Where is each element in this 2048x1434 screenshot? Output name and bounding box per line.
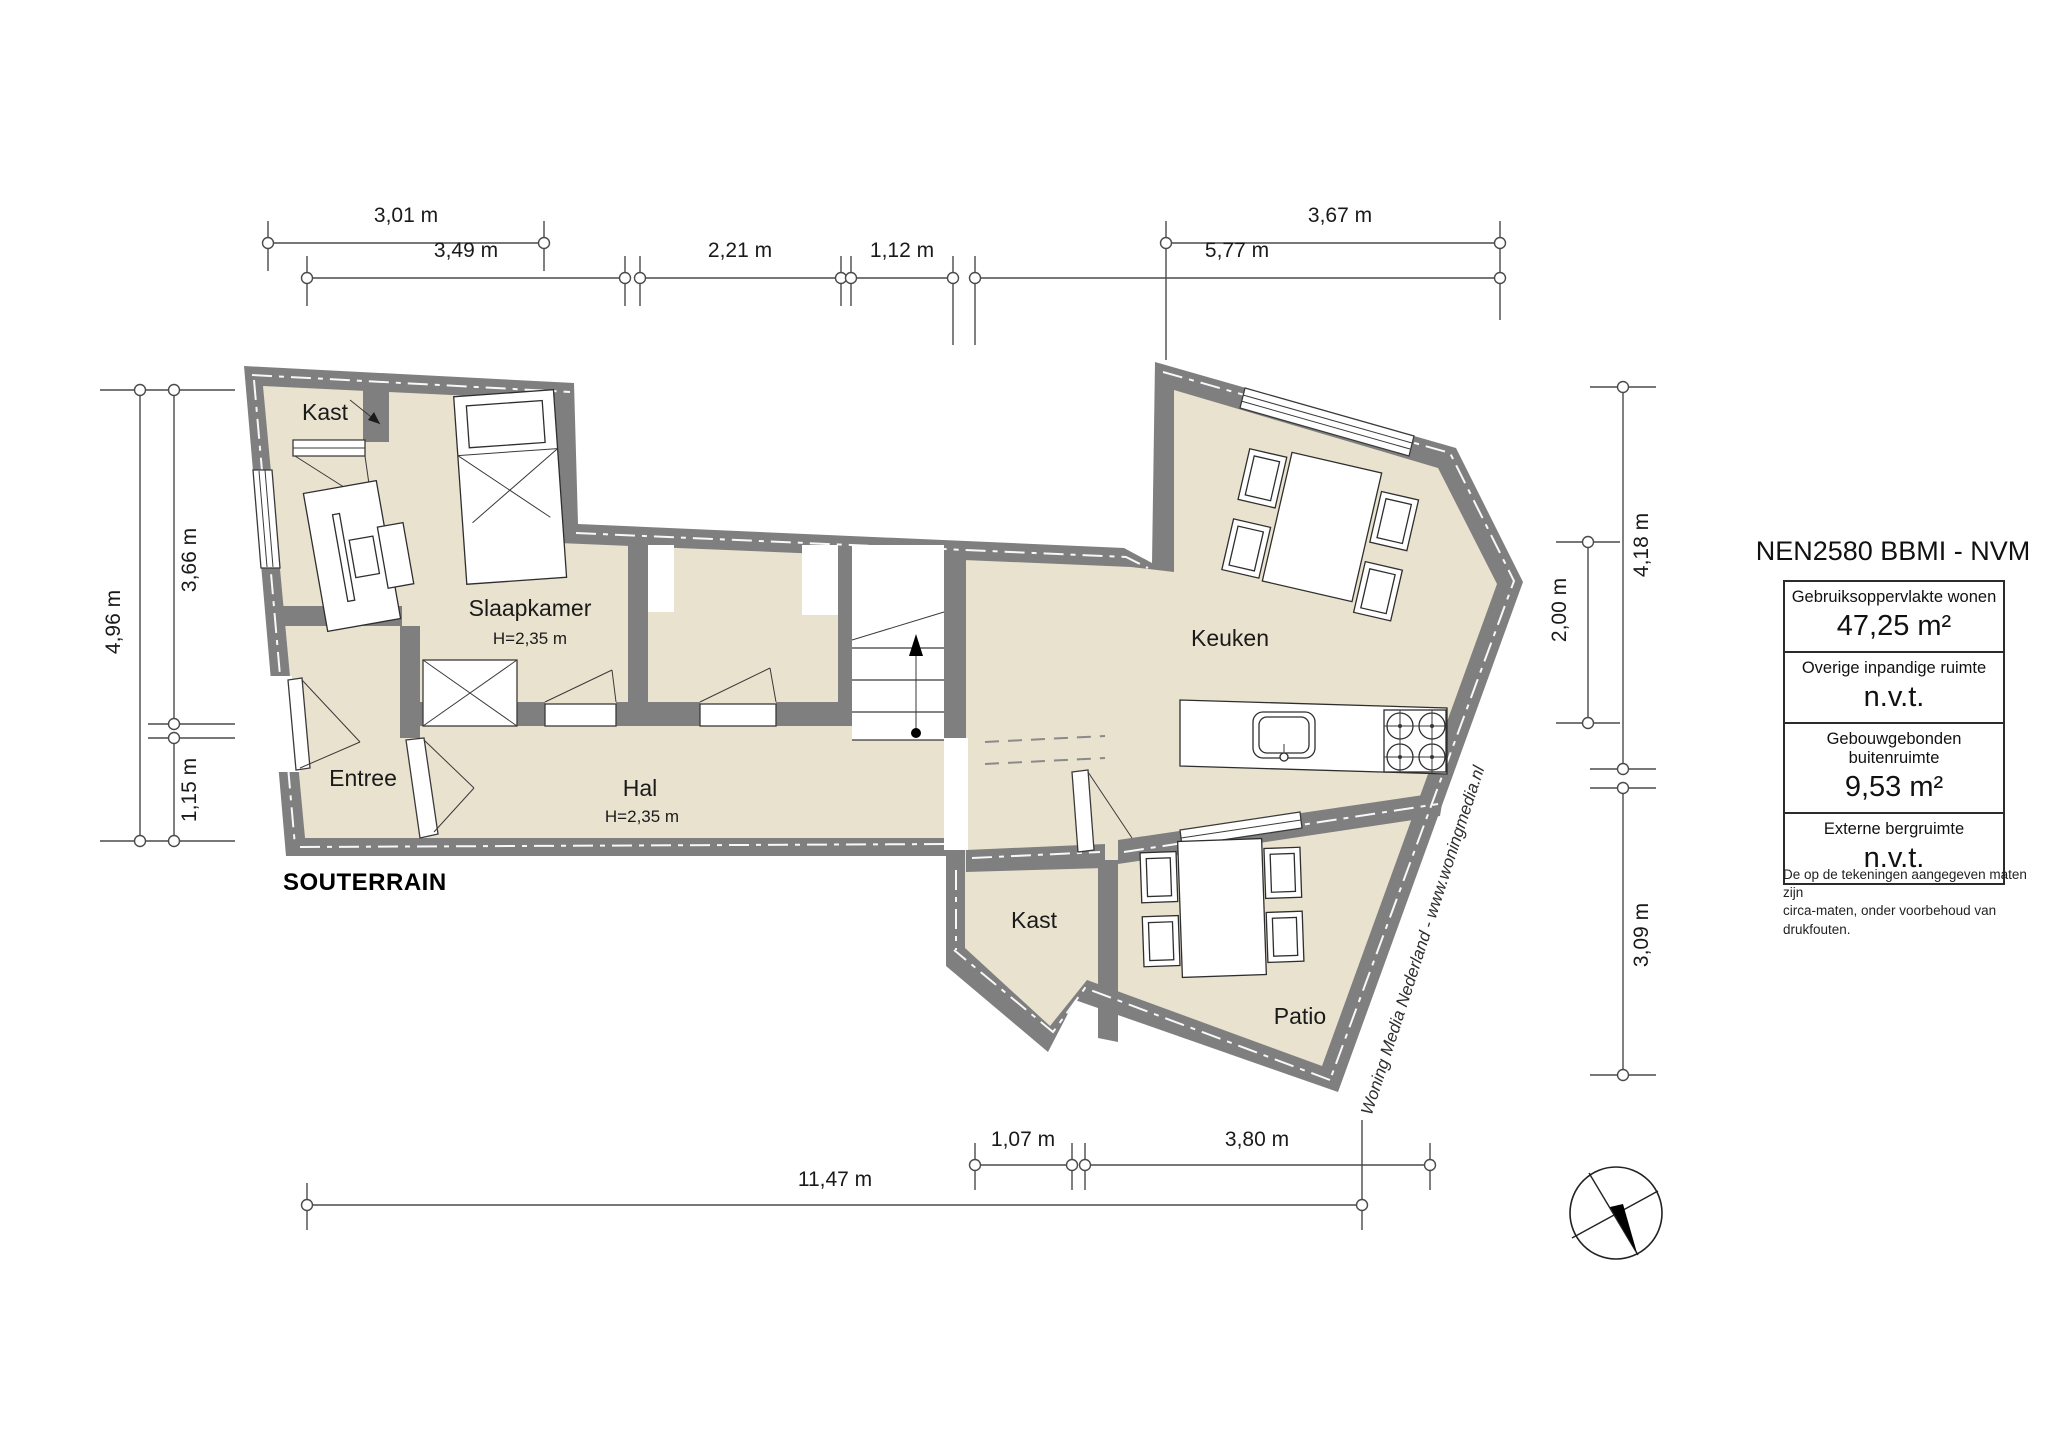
dim-label: 1,15 m: [178, 758, 201, 822]
kast-patio-divider: [1098, 860, 1118, 1042]
floor-title: SOUTERRAIN: [283, 869, 447, 896]
kast-top-wall: [363, 388, 389, 442]
legend-row: Gebruiksoppervlakte wonen 47,25 m²: [1785, 582, 2003, 653]
doormat: [423, 660, 517, 726]
room-label-slaapkamer: Slaapkamer: [469, 595, 592, 621]
middle-stair-divider: [838, 545, 852, 726]
faucet-icon: [1280, 753, 1288, 761]
dim-label: 4,96 m: [102, 590, 125, 654]
legend-row-label: Gebouwgebonden buitenruimte: [1787, 730, 2001, 768]
dim-label: 4,18 m: [1630, 513, 1653, 577]
compass-rose-icon: [1570, 1167, 1662, 1259]
legend-row-value: 47,25 m²: [1787, 610, 2001, 643]
dim-label: 3,09 m: [1630, 903, 1653, 967]
stair-floor: [852, 545, 944, 740]
legend-disclaimer: De op de tekeningen aangegeven maten zij…: [1783, 866, 2043, 939]
legend-table: Gebruiksoppervlakte wonen 47,25 m² Overi…: [1783, 580, 2005, 885]
room-label-keuken: Keuken: [1191, 625, 1269, 651]
dim-label: 2,21 m: [708, 239, 772, 262]
legend-title: NEN2580 BBMI - NVM: [1743, 536, 2043, 567]
entree-hal-wall: [400, 626, 420, 738]
legend-row: Overige inpandige ruimte n.v.t.: [1785, 653, 2003, 724]
stair-right-wall: [944, 545, 966, 740]
room-label-kast-top: Kast: [302, 399, 349, 425]
dim-label: 2,00 m: [1548, 578, 1571, 642]
table-top: [1178, 839, 1267, 978]
legend-disclaimer-line: circa-maten, onder voorbehoud van drukfo…: [1783, 902, 2043, 938]
staircase: [852, 545, 944, 740]
bed: [454, 390, 567, 585]
room-label-patio: Patio: [1274, 1003, 1326, 1029]
dim-label: 3,67 m: [1308, 204, 1372, 227]
legend-row-label: Gebruiksoppervlakte wonen: [1787, 588, 2001, 607]
legend-row: Gebouwgebonden buitenruimte 9,53 m²: [1785, 724, 2003, 814]
middle-room-void-left: [648, 545, 674, 612]
dim-label: 3,01 m: [374, 204, 438, 227]
legend-row-label: Overige inpandige ruimte: [1787, 659, 2001, 678]
chair-inner: [1146, 858, 1171, 897]
stair-start-dot: [911, 728, 921, 738]
chair-inner: [1148, 922, 1173, 961]
dim-label: 3,66 m: [178, 528, 201, 592]
floorplan-canvas: 3,01 m 3,67 m 3,49 m 2,21 m 1,12 m 5,77 …: [0, 0, 2048, 1434]
room-label-hal: Hal: [623, 775, 658, 801]
slaapkamer-middle-divider: [628, 545, 648, 726]
legend-row-label: Externe bergruimte: [1787, 820, 2001, 839]
room-label-kast-bottom: Kast: [1011, 907, 1058, 933]
legend-row-value: n.v.t.: [1787, 681, 2001, 714]
room-height-slaapkamer: H=2,35 m: [493, 629, 567, 648]
hal-kast-opening: [944, 738, 968, 850]
chair-inner: [1270, 853, 1295, 892]
room-label-entree: Entree: [329, 765, 397, 791]
floorplan-page: 3,01 m 3,67 m 3,49 m 2,21 m 1,12 m 5,77 …: [0, 0, 2048, 1434]
dim-label: 3,80 m: [1225, 1128, 1289, 1151]
dim-label: 5,77 m: [1205, 239, 1269, 262]
dim-label: 11,47 m: [798, 1168, 872, 1191]
legend-row-value: 9,53 m²: [1787, 771, 2001, 804]
kitchen-counter: [1180, 700, 1448, 774]
dim-label: 1,07 m: [991, 1128, 1055, 1151]
dim-label: 1,12 m: [870, 239, 934, 262]
middle-room-void-right: [802, 545, 838, 615]
room-height-hal: H=2,35 m: [605, 807, 679, 826]
legend-disclaimer-line: De op de tekeningen aangegeven maten zij…: [1783, 866, 2043, 902]
dim-label: 3,49 m: [434, 239, 498, 262]
chair-inner: [1272, 917, 1297, 956]
